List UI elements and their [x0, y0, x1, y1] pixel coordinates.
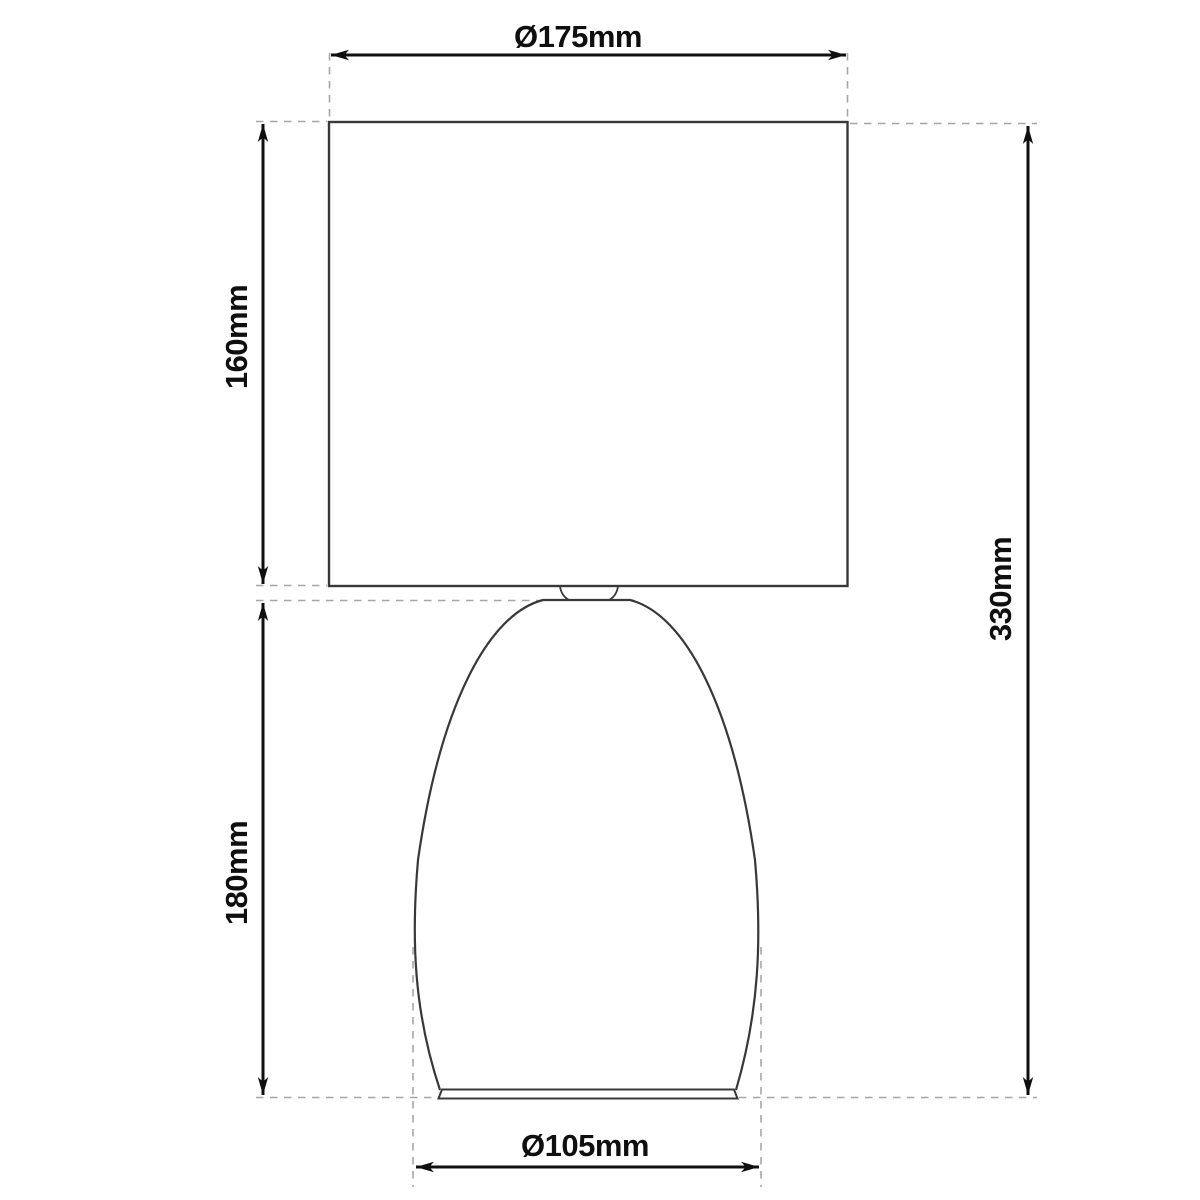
lamp-neck-left-edge — [560, 587, 569, 601]
total-height-label: 330mm — [983, 537, 1018, 641]
lamp-neck-right-edge — [609, 587, 618, 601]
lamp-base-plate — [439, 1090, 738, 1099]
base-diameter-label: Ø105mm — [521, 1128, 649, 1163]
lamp-outline — [329, 122, 848, 1099]
dimension-drawing-canvas: Ø175mm 160mm 180mm 330mm Ø105mm — [0, 0, 1200, 1200]
lamp-dimension-drawing: Ø175mm 160mm 180mm 330mm Ø105mm — [0, 0, 1200, 1200]
body-height-label: 180mm — [219, 821, 254, 925]
shade-height-label: 160mm — [219, 285, 254, 389]
lamp-shade-outline — [329, 122, 848, 586]
lamp-body-outline — [415, 600, 759, 1090]
shade-diameter-label: Ø175mm — [514, 19, 642, 54]
